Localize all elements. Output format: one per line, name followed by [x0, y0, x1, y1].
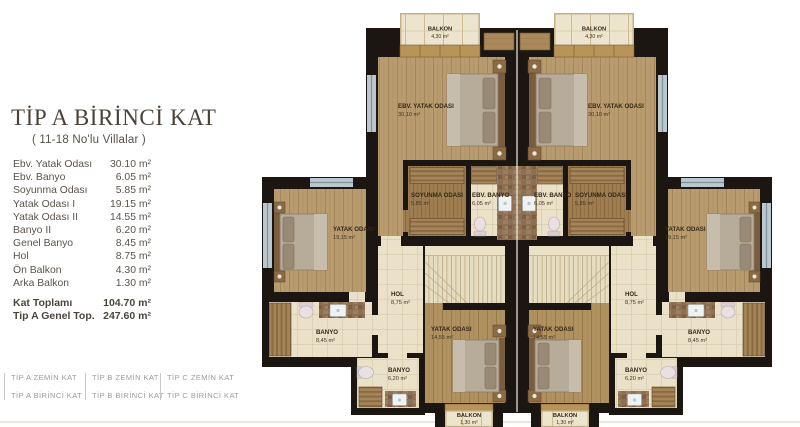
- svg-text:4,30 m²: 4,30 m²: [431, 34, 449, 40]
- list-item: Genel Banyo8.45 m²: [13, 237, 151, 250]
- svg-text:6,20 m²: 6,20 m²: [625, 376, 644, 382]
- label-balcony-front: BALKON: [582, 27, 606, 33]
- label-bedroom-1: YATAK ODASI: [333, 226, 374, 233]
- room-area-list: Ebv. Yatak Odası30.10 m² Ebv. Banyo6.05 …: [13, 158, 151, 290]
- label-hall: HOL: [391, 291, 404, 298]
- svg-text:19,15 m²: 19,15 m²: [665, 235, 687, 241]
- svg-text:30,10 m²: 30,10 m²: [588, 112, 610, 118]
- svg-text:14,55 m²: 14,55 m²: [431, 335, 453, 341]
- party-wall-joint: [516, 30, 517, 412]
- svg-text:8,75 m²: 8,75 m²: [625, 300, 644, 306]
- list-item: Arka Balkon1.30 m²: [13, 277, 151, 290]
- label-master-bedroom: EBV. YATAK ODASI: [398, 103, 454, 110]
- nav-tip-b-zemin-kat[interactable]: TİP B ZEMİN KAT: [92, 373, 164, 382]
- villa-unit-left: [262, 14, 517, 427]
- svg-text:8,45 m²: 8,45 m²: [688, 338, 707, 344]
- label-master-bedroom: EBV. YATAK ODASI: [588, 103, 644, 110]
- total-row: Tip A Genel Top.247.60 m²: [13, 310, 151, 323]
- nav-column-tip-a: TİP A ZEMİN KAT TİP A BİRİNCİ KAT: [4, 373, 82, 400]
- total-row: Kat Toplamı104.70 m²: [13, 297, 151, 310]
- svg-text:6,20 m²: 6,20 m²: [388, 376, 407, 382]
- list-item: Yatak Odası I19.15 m²: [13, 198, 151, 211]
- label-bedroom-2: YATAK ODASI: [533, 326, 574, 333]
- label-balcony-front: BALKON: [428, 27, 452, 33]
- nav-column-tip-b: TİP B ZEMİN KAT TİP B BİRİNCİ KAT: [85, 373, 164, 400]
- svg-text:1,30 m²: 1,30 m²: [460, 420, 478, 426]
- svg-text:4,30 m²: 4,30 m²: [585, 34, 603, 40]
- nav-tip-c-birinci-kat[interactable]: TİP C BİRİNCİ KAT: [167, 391, 239, 400]
- svg-text:5,85 m²: 5,85 m²: [411, 201, 430, 207]
- list-item: Yatak Odası II14.55 m²: [13, 211, 151, 224]
- label-balcony-back: BALKON: [553, 413, 577, 419]
- list-item: Soyunma Odası5.85 m²: [13, 184, 151, 197]
- svg-text:14,55 m²: 14,55 m²: [533, 335, 555, 341]
- svg-text:5,85 m²: 5,85 m²: [575, 201, 594, 207]
- svg-text:30,10 m²: 30,10 m²: [398, 112, 420, 118]
- label-main-bath: BANYO: [316, 329, 338, 336]
- label-balcony-back: BALKON: [457, 413, 481, 419]
- list-item: Hol8.75 m²: [13, 250, 151, 263]
- villa-floorplan-page: TİP A BİRİNCİ KAT ( 11-18 No'lu Villalar…: [0, 0, 800, 427]
- list-item: Banyo II6.20 m²: [13, 224, 151, 237]
- nav-column-tip-c: TİP C ZEMİN KAT TİP C BİRİNCİ KAT: [160, 373, 239, 400]
- page-subtitle: ( 11-18 No'lu Villalar ): [32, 134, 146, 146]
- nav-tip-a-zemin-kat[interactable]: TİP A ZEMİN KAT: [11, 373, 82, 382]
- list-item: Ön Balkon4.30 m²: [13, 264, 151, 277]
- label-bath-2: BANYO: [625, 367, 647, 374]
- label-bedroom-2: YATAK ODASI: [431, 326, 472, 333]
- label-main-bath: BANYO: [688, 329, 710, 336]
- label-hall: HOL: [625, 291, 638, 298]
- nav-tip-b-birinci-kat[interactable]: TİP B BİRİNCİ KAT: [92, 391, 164, 400]
- list-item: Ebv. Yatak Odası30.10 m²: [13, 158, 151, 171]
- svg-text:8,75 m²: 8,75 m²: [391, 300, 410, 306]
- svg-text:6,05 m²: 6,05 m²: [534, 201, 553, 207]
- floor-plan: BALKON 4,30 m² EBV. YATAK ODASI 30,10 m²…: [253, 0, 787, 427]
- label-dressing: SOYUNMA ODASI: [411, 192, 463, 199]
- label-dressing: SOYUNMA ODASI: [575, 192, 627, 199]
- label-master-bath: EBV. BANYO: [472, 192, 510, 199]
- list-item: Ebv. Banyo6.05 m²: [13, 171, 151, 184]
- villa-unit-right: [517, 14, 772, 427]
- label-bedroom-1: YATAK ODASI: [665, 226, 706, 233]
- nav-tip-a-birinci-kat[interactable]: TİP A BİRİNCİ KAT: [11, 391, 82, 400]
- page-title: TİP A BİRİNCİ KAT: [11, 105, 217, 131]
- svg-text:1,30 m²: 1,30 m²: [556, 420, 574, 426]
- label-master-bath: EBV. BANYO: [534, 192, 572, 199]
- label-bath-2: BANYO: [388, 367, 410, 374]
- svg-text:6,05 m²: 6,05 m²: [472, 201, 491, 207]
- svg-text:8,45 m²: 8,45 m²: [316, 338, 335, 344]
- totals-block: Kat Toplamı104.70 m² Tip A Genel Top.247…: [13, 297, 151, 324]
- svg-text:19,15 m²: 19,15 m²: [333, 235, 355, 241]
- nav-tip-c-zemin-kat[interactable]: TİP C ZEMİN KAT: [167, 373, 239, 382]
